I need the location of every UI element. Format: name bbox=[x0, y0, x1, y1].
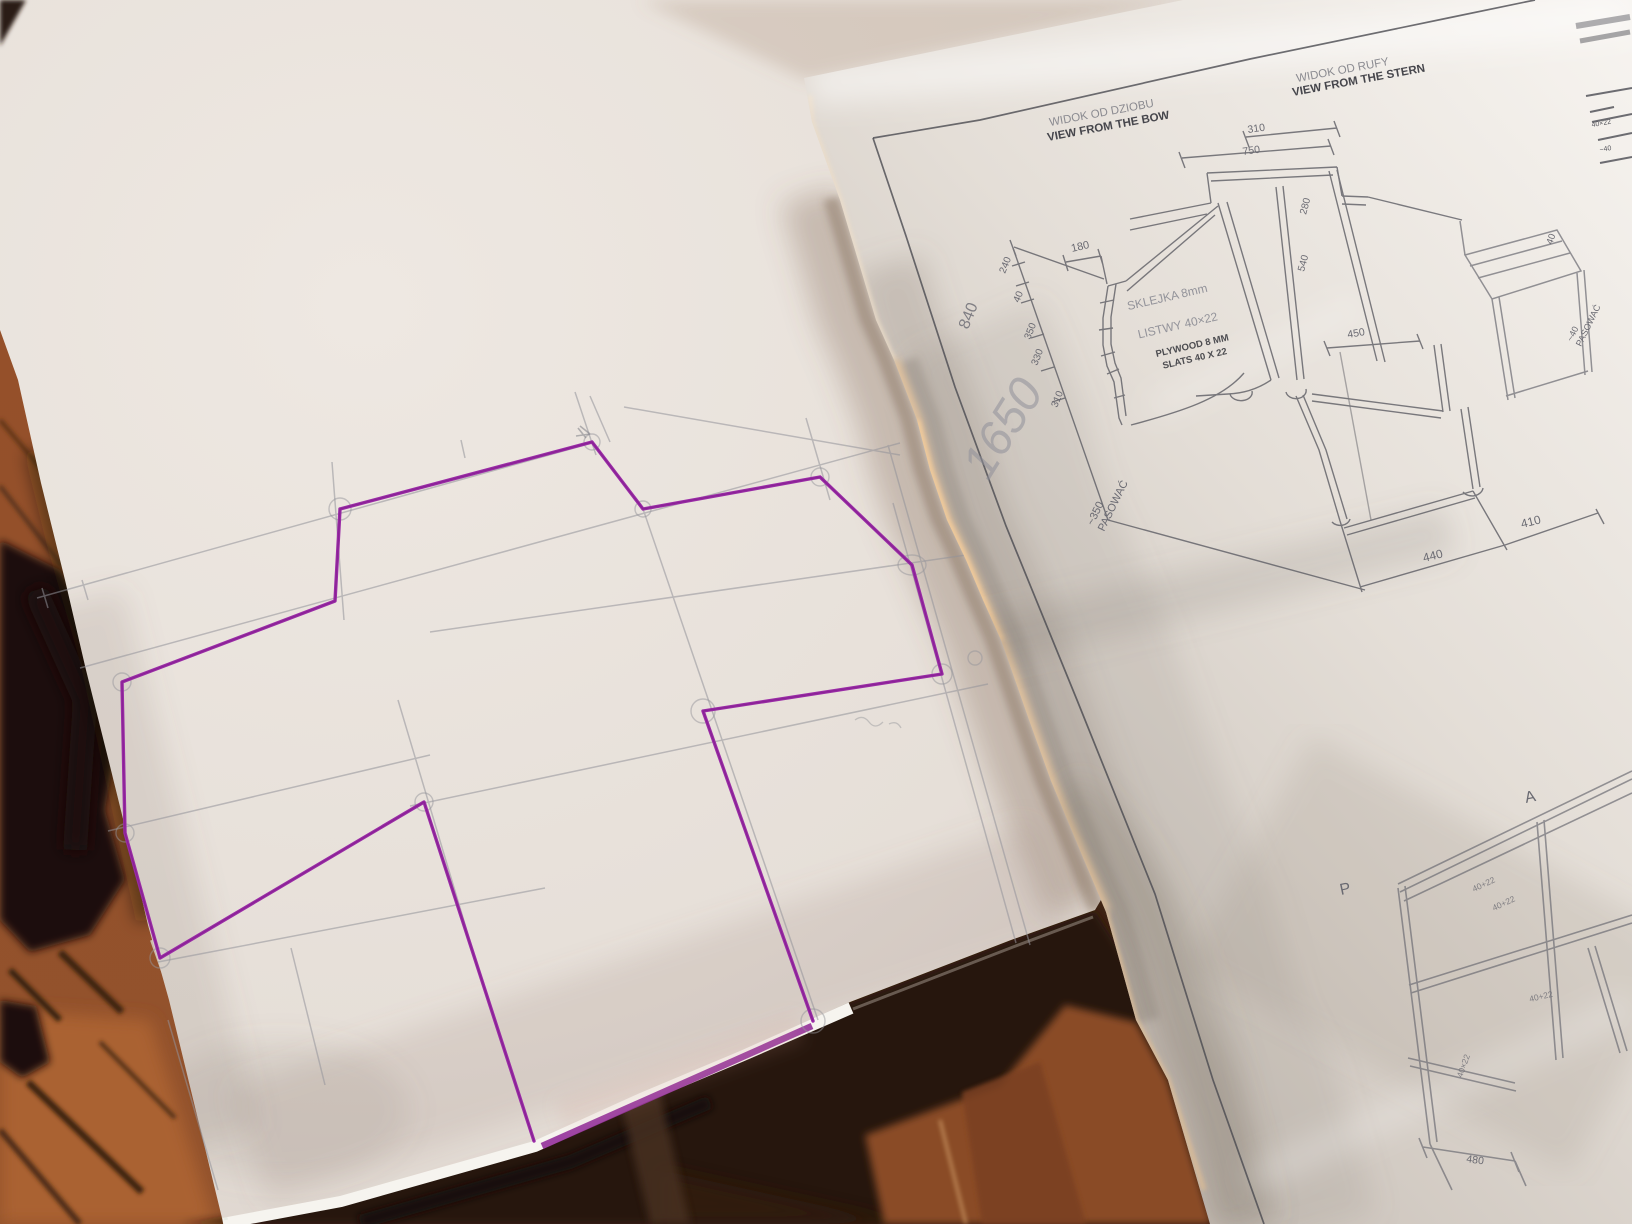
svg-text:310: 310 bbox=[1247, 122, 1266, 136]
svg-text:480: 480 bbox=[1466, 1153, 1485, 1167]
svg-text:750: 750 bbox=[1242, 144, 1261, 158]
